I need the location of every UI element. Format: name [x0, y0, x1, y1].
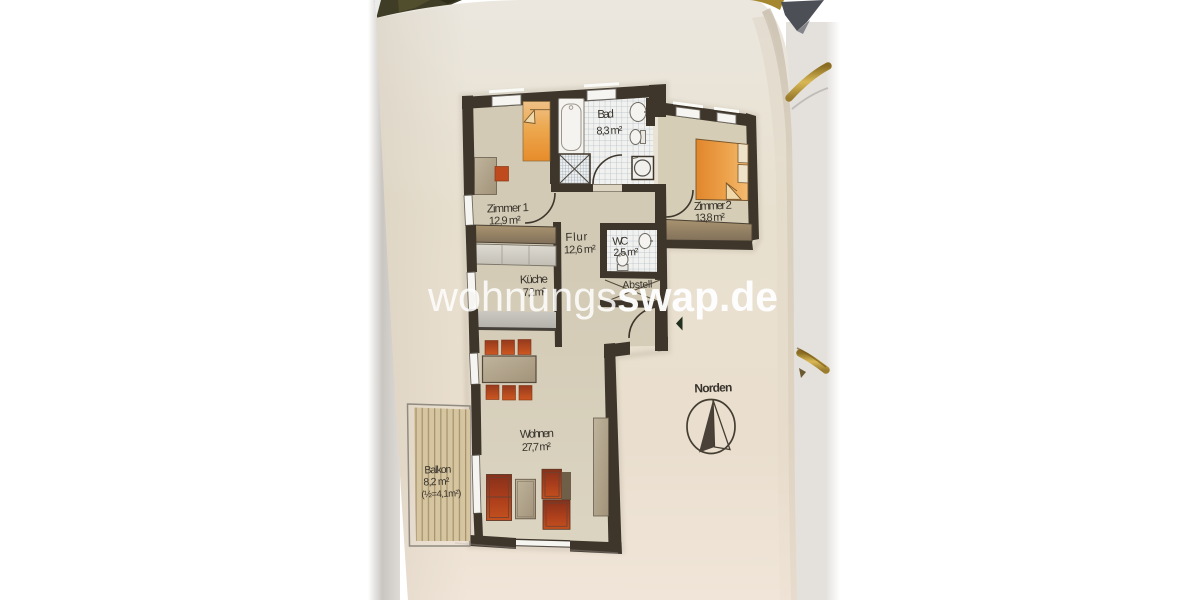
svg-text:(½=4,1m²): (½=4,1m²) [421, 488, 461, 500]
svg-text:12,6 m²: 12,6 m² [564, 243, 597, 256]
svg-text:Flur: Flur [565, 231, 588, 244]
svg-text:Balkon: Balkon [424, 464, 452, 477]
svg-text:Norden: Norden [694, 380, 732, 395]
svg-text:2,5 m²: 2,5 m² [613, 246, 639, 259]
svg-text:13,8 m²: 13,8 m² [695, 211, 726, 224]
svg-text:wohnungs: wohnungs [427, 273, 617, 320]
svg-text:8,2 m²: 8,2 m² [423, 476, 450, 489]
svg-text:Zimmer 1: Zimmer 1 [487, 202, 529, 215]
svg-text:Wohnen: Wohnen [520, 428, 554, 441]
svg-text:Bad: Bad [597, 108, 614, 121]
svg-text:12,9 m²: 12,9 m² [489, 214, 522, 227]
svg-text:swap.de: swap.de [617, 273, 778, 320]
svg-text:27,7 m²: 27,7 m² [522, 441, 552, 454]
svg-text:8,3 m²: 8,3 m² [596, 125, 623, 138]
